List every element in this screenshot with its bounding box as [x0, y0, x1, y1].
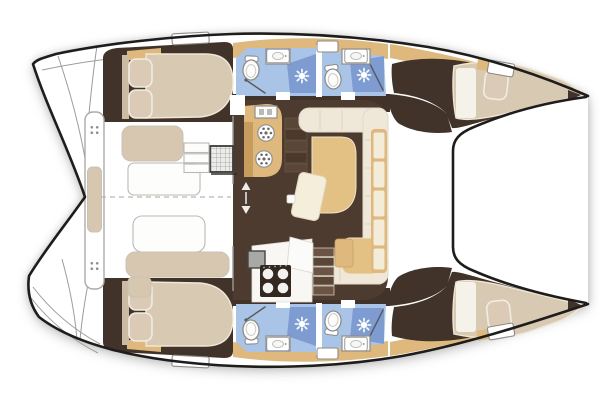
- deck-hatch: [317, 348, 338, 359]
- shower-rose-icon: [295, 69, 308, 82]
- helm-seat-mesh: [210, 146, 233, 172]
- galley-counter-edge: [244, 122, 253, 177]
- aft-bench-cushion: [88, 167, 102, 232]
- deck-hatch: [317, 41, 338, 52]
- head-divider-wall: [316, 45, 322, 97]
- salon-forward-window-wall: [371, 129, 387, 273]
- stove-burner: [278, 283, 289, 294]
- step: [285, 153, 307, 164]
- berth-sheet: [456, 282, 476, 332]
- berth-sheet: [456, 68, 476, 118]
- step: [285, 141, 307, 152]
- galley-appliance: [255, 106, 277, 118]
- pillow: [129, 90, 152, 118]
- stove-burner: [263, 269, 274, 280]
- window-pane: [374, 191, 385, 217]
- sink-icon: [267, 49, 290, 63]
- table-leg-mount: [287, 195, 295, 203]
- stair-tread: [313, 267, 334, 276]
- stair-tread: [313, 248, 334, 257]
- helm-step: [184, 164, 209, 173]
- window-pane: [374, 162, 385, 188]
- starboard-companionway-stairs: [313, 248, 334, 295]
- stair-cabinet: [335, 239, 353, 267]
- step: [285, 164, 307, 172]
- sink-icon: [345, 337, 368, 351]
- starboard-bench-cushion: [126, 252, 229, 277]
- catamaran-floor-plan-diagram: [0, 0, 600, 400]
- sink-icon: [345, 49, 368, 63]
- port-aft-headboard: [122, 55, 129, 119]
- shower-rose-icon: [357, 318, 370, 331]
- stair-tread: [313, 258, 334, 267]
- toilet-icon: [242, 320, 259, 345]
- stove-burner: [278, 269, 289, 280]
- sink-icon: [267, 337, 290, 351]
- stair-tread: [313, 286, 334, 295]
- shower-rose-icon: [357, 68, 370, 81]
- window-pane: [374, 220, 385, 246]
- head-divider-wall: [316, 303, 322, 355]
- port-aft-head: [236, 48, 316, 96]
- salon: [230, 95, 388, 302]
- helm-step: [184, 154, 209, 163]
- window-pane: [374, 249, 385, 270]
- appliance-detail: [267, 109, 272, 115]
- helm-step: [184, 143, 209, 153]
- port-forward-head: [322, 49, 386, 96]
- shower-rose-icon: [295, 317, 308, 330]
- stair-tread: [313, 277, 334, 286]
- salon-side-door-gap: [230, 95, 245, 115]
- port-aft-berth: [146, 54, 233, 118]
- starboard-aft-berth: [146, 282, 233, 346]
- window-pane: [374, 133, 385, 159]
- toilet-icon: [242, 56, 259, 81]
- starboard-aft-head: [236, 304, 316, 352]
- starboard-forward-head: [322, 304, 386, 351]
- pillow: [129, 313, 152, 341]
- round-sink-icon: [256, 151, 272, 167]
- port-side-bench: [122, 126, 183, 161]
- round-sink-icon: [258, 125, 274, 141]
- appliance-detail: [259, 109, 264, 115]
- stove: [260, 265, 291, 297]
- stove-burner: [263, 283, 274, 294]
- bench-step-cushion: [128, 277, 151, 297]
- galley: [244, 104, 282, 177]
- boat: [28, 32, 588, 368]
- stove-counter: [248, 237, 313, 302]
- starboard-side-bench: [133, 216, 205, 252]
- helm-module: [184, 143, 237, 174]
- pillow: [129, 59, 152, 87]
